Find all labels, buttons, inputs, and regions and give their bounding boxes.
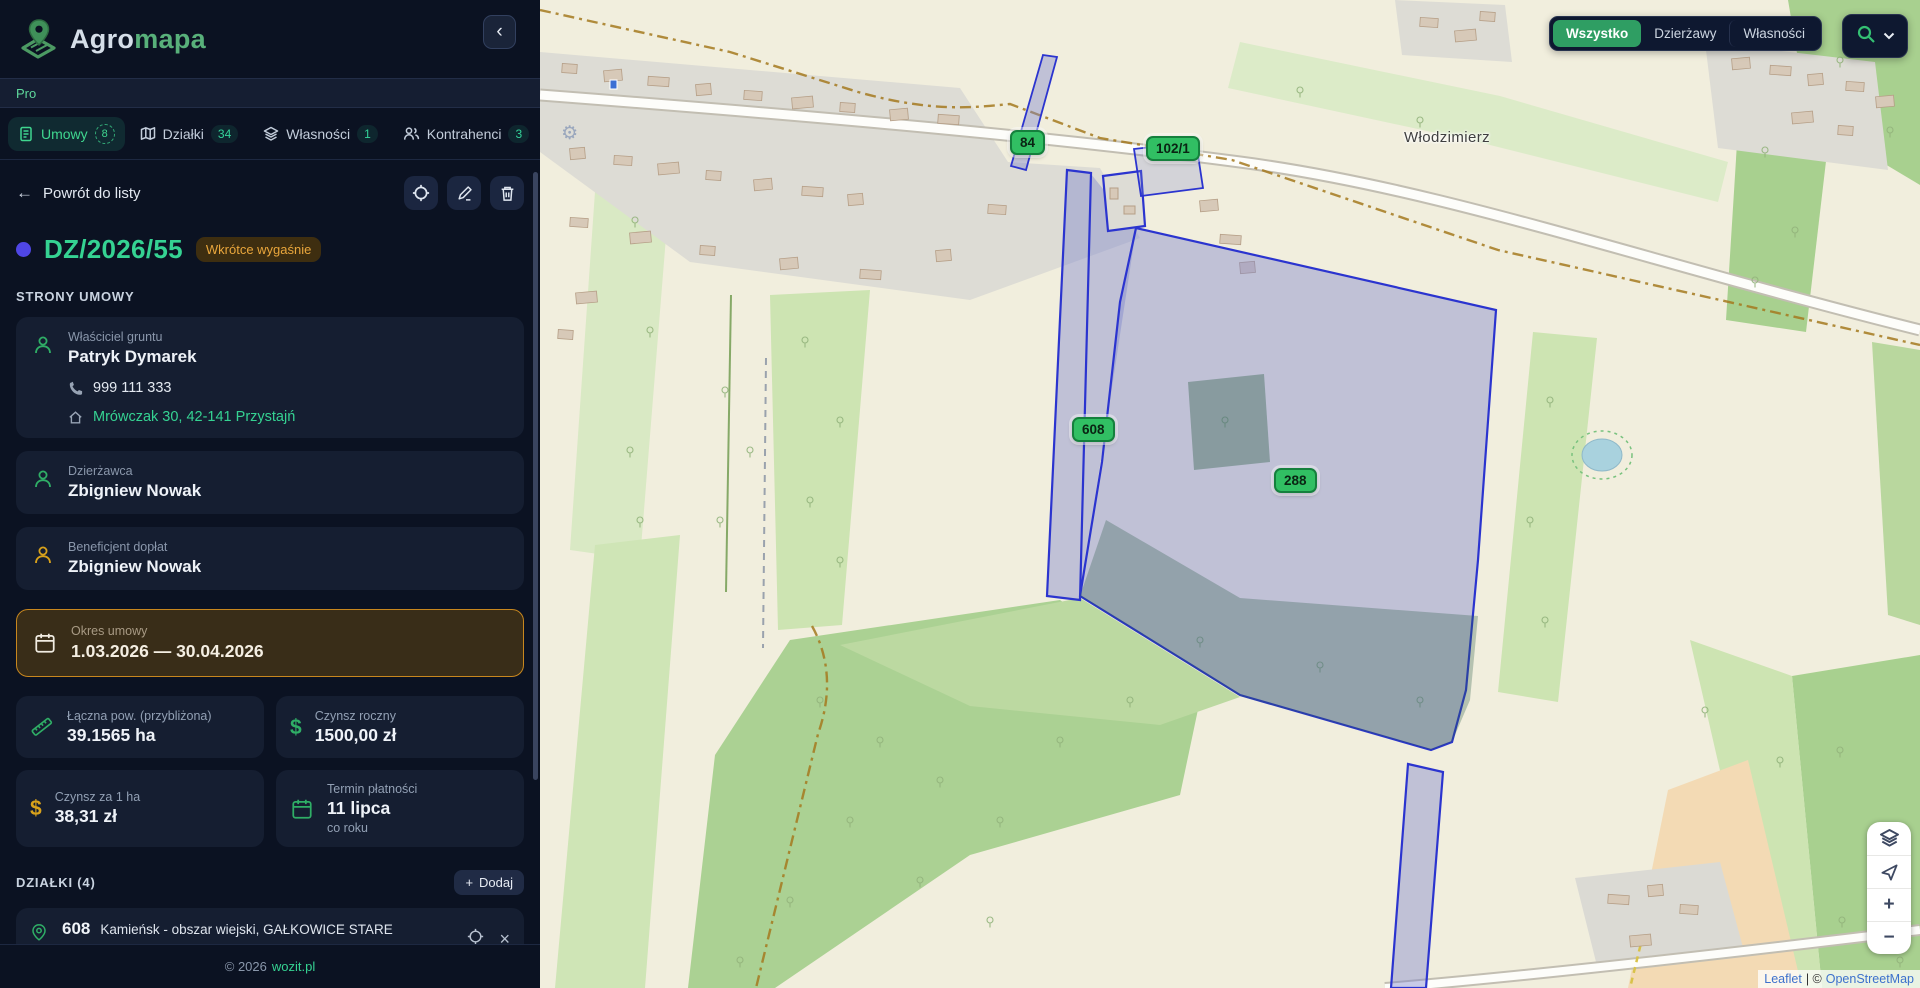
stat-value: 39.1565 ha (67, 725, 212, 746)
back-arrow-icon: ← (16, 183, 33, 203)
layers-icon (263, 126, 279, 142)
zoom-out-button[interactable]: − (1867, 921, 1911, 954)
crosshair-icon (467, 928, 484, 944)
remove-parcel-button[interactable]: × (499, 930, 510, 944)
leaflet-link[interactable]: Leaflet (1764, 972, 1802, 986)
parcel-number: 608 (62, 919, 90, 939)
parties-section-header: STRONY UMOWY (16, 289, 524, 304)
map-pin-icon (30, 919, 48, 944)
person-icon (32, 330, 54, 425)
sidebar-footer: © 2026 wozit.pl (0, 944, 540, 988)
back-to-list-link[interactable]: ← Powrót do listy (16, 183, 141, 203)
parcel-list-item[interactable]: 608 Kamieńsk - obszar wiejski, GAŁKOWICE… (16, 908, 524, 944)
party-role: Beneficjent dopłat (68, 540, 201, 554)
home-icon (68, 410, 83, 425)
stat-value: 1500,00 zł (315, 725, 397, 746)
settings-button[interactable]: ⚙ (555, 122, 584, 145)
app-logo: Agromapa (0, 0, 540, 61)
tab-umowy[interactable]: Umowy 8 (8, 117, 125, 151)
party-card-owner[interactable]: Właściciel gruntu Patryk Dymarek 999 111… (16, 317, 524, 438)
stat-card-annual-rent: $ Czynsz roczny 1500,00 zł (276, 696, 524, 758)
filter-wszystko[interactable]: Wszystko (1553, 20, 1641, 47)
parcel-marker-608[interactable]: 608 (1072, 417, 1115, 442)
bus-stop-icon (610, 80, 617, 89)
locate-parcel-button[interactable] (467, 928, 484, 944)
layers-button[interactable] (1867, 822, 1911, 855)
parcel-marker-102-1[interactable]: 102/1 (1146, 136, 1200, 161)
attribution-divider: | © (1806, 972, 1822, 986)
filter-dzierzawy[interactable]: Dzierżawy (1641, 20, 1729, 47)
stat-label: Łączna pow. (przybliżona) (67, 709, 212, 723)
contract-period-card[interactable]: Okres umowy 1.03.2026 — 30.04.2026 (16, 609, 524, 677)
phone-icon (68, 381, 83, 396)
party-phone: 999 111 333 (93, 380, 171, 396)
sidebar-header: Agromapa ‹ (0, 0, 540, 78)
map-attribution: Leaflet | © OpenStreetMap (1758, 970, 1920, 988)
contract-detail-panel: ← Powrót do listy DZ/2026/55 Wkrótce wyg… (0, 160, 540, 944)
search-icon (1856, 24, 1876, 49)
stat-card-rent-per-ha: $ Czynsz za 1 ha 38,31 zł (16, 770, 264, 847)
forest-inside-parcel (1188, 374, 1270, 470)
ruler-icon (30, 715, 54, 739)
calendar-icon (33, 631, 57, 655)
stat-value: 38,31 zł (55, 806, 140, 827)
parcel-name: Kamieńsk - obszar wiejski, GAŁKOWICE STA… (100, 922, 392, 937)
party-card-tenant[interactable]: Dzierżawca Zbigniew Nowak (16, 451, 524, 514)
party-address: Mrówczak 30, 42-141 Przystajń (93, 409, 295, 425)
tab-count-badge: 1 (357, 125, 378, 143)
period-label: Okres umowy (71, 624, 264, 638)
stat-card-area: Łączna pow. (przybliżona) 39.1565 ha (16, 696, 264, 758)
stat-label: Czynsz za 1 ha (55, 790, 140, 804)
chevron-left-icon: ‹ (496, 21, 502, 43)
party-name: Patryk Dymarek (68, 347, 508, 367)
parcel-marker-84[interactable]: 84 (1010, 130, 1045, 155)
tab-dzialki[interactable]: Działki 34 (130, 118, 249, 150)
delete-contract-button[interactable] (490, 176, 524, 210)
calendar-icon (290, 797, 314, 821)
map-icon (140, 126, 156, 142)
plan-bar: Pro (0, 78, 540, 108)
gear-icon: ⚙ (561, 123, 578, 144)
person-icon (32, 540, 54, 577)
people-icon (403, 126, 420, 142)
building-footprints (1110, 188, 1118, 199)
locate-button[interactable] (1867, 855, 1911, 888)
crosshair-icon (412, 184, 430, 202)
tab-kontrahenci[interactable]: Kontrahenci 3 (393, 118, 539, 150)
status-badge: Wkrótce wygaśnie (196, 237, 321, 262)
tab-count-badge: 34 (211, 125, 238, 143)
stat-label: Termin płatności (327, 782, 417, 796)
app-title: Agromapa (70, 24, 206, 55)
trash-icon (499, 185, 516, 202)
party-name: Zbigniew Nowak (68, 481, 201, 501)
openstreetmap-link[interactable]: OpenStreetMap (1826, 972, 1914, 986)
stat-label: Czynsz roczny (315, 709, 397, 723)
place-label: Włodzimierz (1404, 129, 1490, 146)
party-role: Właściciel gruntu (68, 330, 508, 344)
pencil-icon (456, 185, 473, 202)
stat-value: 11 lipca (327, 798, 417, 819)
zoom-in-button[interactable]: + (1867, 888, 1911, 921)
add-parcel-button[interactable]: + Dodaj (454, 870, 524, 895)
stat-sub: co roku (327, 821, 417, 835)
dollar-icon: $ (290, 717, 302, 738)
filter-wlasnosci[interactable]: Własności (1729, 20, 1818, 47)
sidebar: Agromapa ‹ Pro Umowy 8 Działki 34 Własno… (0, 0, 540, 988)
parcels-section-header: DZIAŁKI (4) (16, 875, 96, 890)
navigation-arrow-icon (1880, 863, 1899, 882)
logo-pin-field-icon (18, 17, 60, 61)
building-footprints (1124, 206, 1135, 214)
edit-contract-button[interactable] (447, 176, 481, 210)
party-address-row[interactable]: Mrówczak 30, 42-141 Przystajń (68, 409, 508, 425)
map-filter-segmented-control: Wszystko Dzierżawy Własności (1549, 16, 1822, 51)
layers-icon (1879, 828, 1900, 849)
person-icon (32, 464, 54, 501)
party-card-beneficiary[interactable]: Beneficjent dopłat Zbigniew Nowak (16, 527, 524, 590)
sidebar-scrollbar[interactable] (533, 172, 538, 780)
locate-contract-button[interactable] (404, 176, 438, 210)
tab-count-badge: 8 (95, 124, 115, 144)
period-value: 1.03.2026 — 30.04.2026 (71, 641, 264, 662)
document-icon (18, 126, 34, 142)
party-name: Zbigniew Nowak (68, 557, 201, 577)
tab-wlasnosci[interactable]: Własności 1 (253, 118, 387, 150)
chevron-down-icon (1883, 27, 1895, 45)
map-canvas[interactable]: Włodzimierz 84 102/1 608 288 Wszystko Dz… (540, 0, 1920, 988)
party-phone-row: 999 111 333 (68, 380, 508, 396)
map-controls: + − (1867, 822, 1911, 954)
stat-card-payment-date: Termin płatności 11 lipca co roku (276, 770, 524, 847)
contract-id: DZ/2026/55 (44, 234, 183, 265)
dollar-icon: $ (30, 798, 42, 819)
nav-tabs: Umowy 8 Działki 34 Własności 1 Kontrahen… (0, 108, 540, 160)
map-art (540, 0, 1920, 988)
contract-type-dot (16, 242, 31, 257)
copyright-text: © 2026 (225, 959, 267, 974)
tab-count-badge: 3 (508, 125, 529, 143)
party-role: Dzierżawca (68, 464, 201, 478)
collapse-sidebar-button[interactable]: ‹ (483, 15, 516, 49)
plus-icon: + (465, 875, 473, 890)
plan-badge: Pro (16, 86, 36, 101)
footer-link[interactable]: wozit.pl (272, 959, 315, 974)
map-search-button[interactable] (1842, 14, 1908, 58)
parcel-marker-288[interactable]: 288 (1274, 468, 1317, 493)
